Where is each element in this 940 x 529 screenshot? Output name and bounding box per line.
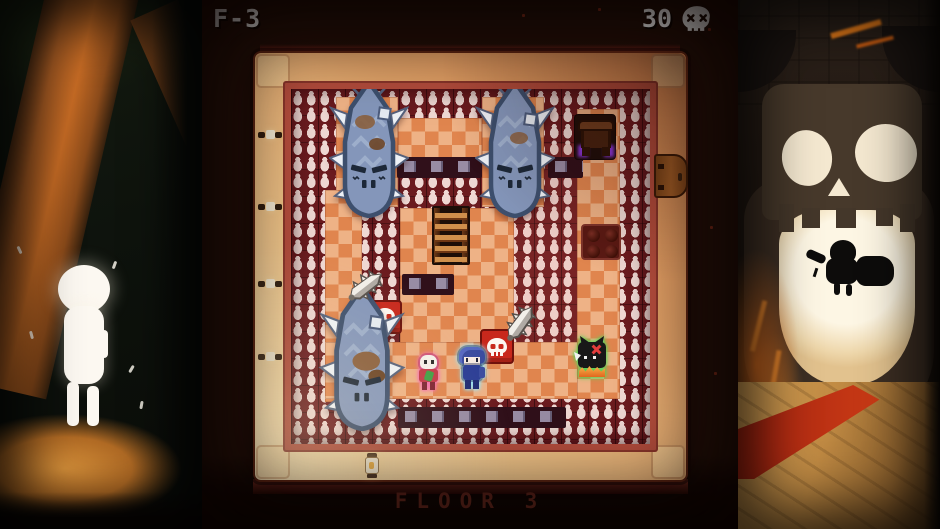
sconce-candle [266,130,275,139]
golem-dirt [369,138,385,150]
spiked-golem[interactable] [318,285,406,431]
sconce-candle [266,202,275,211]
golem-dirt [352,352,380,371]
cat-eye [584,356,587,359]
plate-knob [587,229,600,242]
sconce-bracket [258,204,265,210]
player-bluehair[interactable] [454,342,490,392]
player-leg [473,380,479,389]
sconce-candle [266,279,275,288]
altar-top [578,120,614,131]
door-hinge [658,164,664,169]
player-eye [466,358,468,362]
right-art-panel [738,0,940,529]
golem-dirt [355,115,375,129]
side-door[interactable] [654,154,688,198]
lantern-base [367,474,377,478]
wall-sconce [258,279,282,288]
lantern-flame [369,462,374,469]
plate-knob [605,245,618,258]
player-eye [476,358,478,362]
skull-icon [680,4,714,33]
sconce-bracket [275,354,282,360]
door-handle [678,173,682,181]
golem-glint [370,316,383,329]
candle-wall-field [291,89,650,444]
skeleton-imp[interactable] [412,352,445,396]
skeleton-eye [431,360,434,364]
hud-skull-count: 30 [642,4,672,33]
left-art-panel [0,0,202,529]
sconce-bracket [258,354,265,360]
cat-spirit[interactable] [574,336,610,380]
golem-dirt [510,132,528,144]
speckle-dot [598,8,601,11]
left-panel-vignette [0,0,202,529]
sconce-bracket [258,132,265,138]
plate-knob [587,245,600,258]
ladder[interactable] [432,206,470,265]
sconce-bracket [275,132,282,138]
board-frame [253,51,688,482]
game-screen: F-3 30 FLOOR 3 [0,0,940,529]
candle-base-row [397,157,482,178]
door-hinge [658,185,664,190]
speckle-dot [714,372,717,375]
candle-base-row [398,407,566,428]
wall-sconce [258,130,282,139]
player-arm [479,367,485,378]
skeleton-head [420,355,437,369]
altar-body [581,131,611,148]
sconce-candle [266,352,275,361]
sconce-bracket [258,281,265,287]
wall-sconce [258,202,282,211]
skeleton-eye [424,360,427,364]
skeleton-leg [430,382,435,390]
candle-base-row [402,274,454,295]
spiked-golem[interactable] [329,89,409,218]
plate-knob [605,229,618,242]
wall-sconce [258,352,282,361]
hud-skull-counter: 30 [642,4,714,33]
altar-table[interactable] [574,114,616,160]
pressure-plate[interactable] [581,224,621,260]
right-panel-vignette [738,0,940,529]
altar-leg [602,147,610,156]
sconce-bracket [275,204,282,210]
speckle-dot [522,14,525,17]
altar-leg [582,147,590,156]
game-viewport: F-3 30 FLOOR 3 [202,0,738,529]
golem-glint [524,113,536,125]
ladder-rungs [435,210,467,262]
speckle-dot [710,226,713,229]
spiked-golem[interactable] [475,89,555,218]
golem-glint [378,107,390,119]
lantern [363,453,381,479]
skeleton-leg [422,382,427,390]
hud-floor-code: F-3 [213,4,261,33]
cat-eye [593,356,596,359]
floor-title: FLOOR 3 [253,489,688,513]
sconce-bracket [275,281,282,287]
player-leg [465,380,471,389]
